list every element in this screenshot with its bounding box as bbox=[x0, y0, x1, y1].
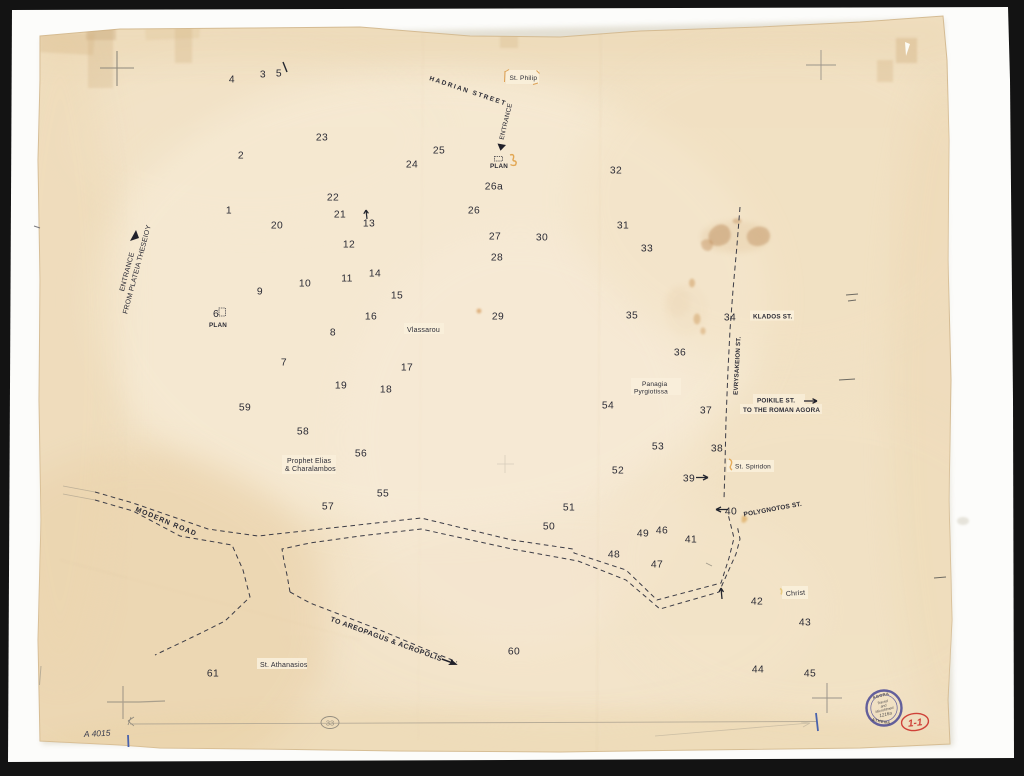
svg-text:26a: 26a bbox=[485, 182, 503, 193]
svg-text:27: 27 bbox=[489, 232, 501, 243]
svg-text:Pyrgiotissa: Pyrgiotissa bbox=[634, 389, 668, 396]
svg-text:34: 34 bbox=[724, 313, 736, 324]
svg-text:7: 7 bbox=[281, 358, 287, 369]
svg-text:29: 29 bbox=[492, 312, 504, 323]
svg-text:21: 21 bbox=[334, 210, 346, 221]
svg-text:16: 16 bbox=[365, 312, 377, 323]
svg-text:4: 4 bbox=[229, 75, 235, 86]
svg-text:19: 19 bbox=[335, 381, 347, 392]
svg-text:3: 3 bbox=[260, 70, 266, 81]
svg-text:50: 50 bbox=[543, 522, 555, 533]
svg-text:32: 32 bbox=[610, 166, 622, 177]
svg-text:26: 26 bbox=[468, 206, 480, 217]
svg-text:48: 48 bbox=[608, 550, 620, 561]
svg-text:35: 35 bbox=[626, 311, 638, 322]
svg-text:45: 45 bbox=[804, 669, 816, 680]
svg-text:1: 1 bbox=[226, 206, 232, 217]
svg-text:52: 52 bbox=[612, 466, 624, 477]
svg-text:54: 54 bbox=[602, 401, 614, 412]
svg-text:57: 57 bbox=[322, 502, 334, 513]
svg-text:31: 31 bbox=[617, 221, 629, 232]
svg-text:24: 24 bbox=[406, 160, 418, 171]
svg-text:28: 28 bbox=[491, 253, 503, 264]
svg-text:14: 14 bbox=[369, 269, 381, 280]
svg-text:60: 60 bbox=[508, 647, 520, 658]
svg-text:St. Philip: St. Philip bbox=[510, 75, 538, 82]
svg-text:33: 33 bbox=[641, 244, 653, 255]
svg-text:22: 22 bbox=[327, 193, 339, 204]
svg-text:POIKILE ST.: POIKILE ST. bbox=[757, 398, 795, 405]
svg-text:St. Spiridon: St. Spiridon bbox=[735, 464, 771, 471]
svg-text:39: 39 bbox=[683, 474, 695, 485]
svg-text:Vlassarou: Vlassarou bbox=[407, 327, 440, 334]
svg-text:53: 53 bbox=[652, 442, 664, 453]
svg-text:30: 30 bbox=[536, 233, 548, 244]
svg-text:37: 37 bbox=[700, 406, 712, 417]
svg-text:10: 10 bbox=[299, 279, 311, 290]
svg-text:13: 13 bbox=[363, 219, 375, 230]
svg-text:33: 33 bbox=[326, 719, 334, 728]
svg-text:Panagia: Panagia bbox=[642, 381, 667, 388]
svg-text:42: 42 bbox=[751, 597, 763, 608]
svg-text:8: 8 bbox=[330, 328, 336, 339]
svg-text:1-1: 1-1 bbox=[907, 717, 923, 729]
svg-text:38: 38 bbox=[711, 444, 723, 455]
svg-text:6: 6 bbox=[213, 309, 219, 320]
svg-text:23: 23 bbox=[316, 133, 328, 144]
svg-text:43: 43 bbox=[799, 618, 811, 629]
svg-text:46: 46 bbox=[656, 526, 668, 537]
svg-text:TO THE ROMAN AGORA: TO THE ROMAN AGORA bbox=[743, 407, 820, 414]
svg-text:61: 61 bbox=[207, 669, 219, 680]
svg-text:St. Athanasios: St. Athanasios bbox=[260, 662, 308, 669]
svg-text:51: 51 bbox=[563, 503, 575, 514]
svg-text:5: 5 bbox=[276, 69, 282, 80]
svg-text:17: 17 bbox=[401, 363, 413, 374]
svg-text:36: 36 bbox=[674, 348, 686, 359]
svg-text:PLAN: PLAN bbox=[209, 322, 227, 329]
svg-text:56: 56 bbox=[355, 449, 367, 460]
svg-text:20: 20 bbox=[271, 221, 283, 232]
svg-text:59: 59 bbox=[239, 403, 251, 414]
svg-text:44: 44 bbox=[752, 665, 764, 676]
svg-text:12: 12 bbox=[343, 240, 355, 251]
svg-text:47: 47 bbox=[651, 560, 663, 571]
svg-text:9: 9 bbox=[257, 287, 263, 298]
svg-text:15: 15 bbox=[391, 291, 403, 302]
svg-text:40: 40 bbox=[725, 507, 737, 518]
svg-text:A 4015: A 4015 bbox=[83, 728, 111, 739]
svg-text:55: 55 bbox=[377, 489, 389, 500]
svg-text:41: 41 bbox=[685, 535, 697, 546]
svg-text:2: 2 bbox=[238, 151, 244, 162]
svg-text:& Charalambos: & Charalambos bbox=[285, 466, 336, 473]
svg-text:Christ: Christ bbox=[786, 590, 806, 598]
svg-text:PLAN: PLAN bbox=[490, 163, 508, 170]
svg-text:49: 49 bbox=[637, 529, 649, 540]
svg-text:KLADOS ST.: KLADOS ST. bbox=[753, 314, 792, 321]
svg-text:Prophet Elias: Prophet Elias bbox=[287, 458, 332, 465]
svg-text:18: 18 bbox=[380, 385, 392, 396]
svg-text:58: 58 bbox=[297, 427, 309, 438]
svg-text:25: 25 bbox=[433, 146, 445, 157]
svg-text:11: 11 bbox=[341, 274, 353, 285]
